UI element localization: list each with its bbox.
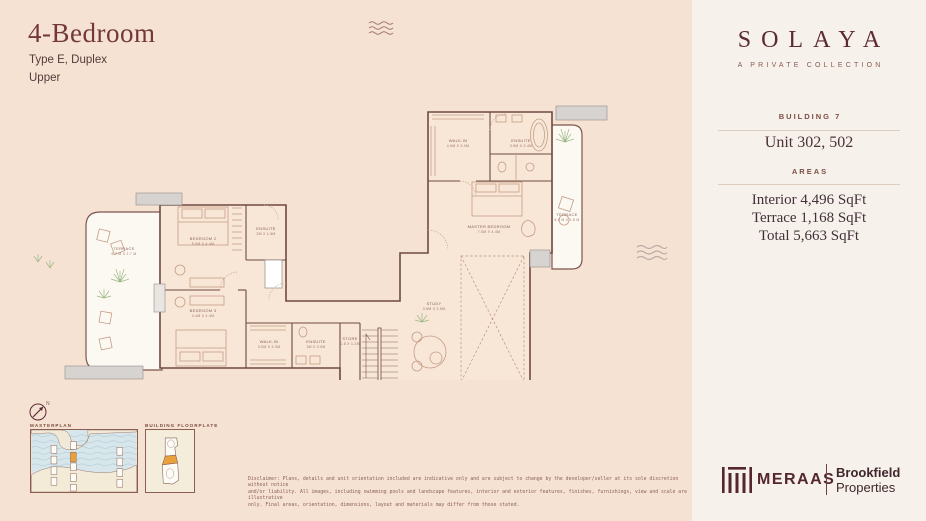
page-title: 4-Bedroom [28,18,155,49]
floorplate-label: BUILDING FLOORPLATE [145,423,218,428]
svg-text:BEDROOM 2: BEDROOM 2 [190,236,217,241]
svg-text:TERRACE: TERRACE [113,246,134,251]
svg-text:ENSUITE: ENSUITE [511,138,530,143]
disclaimer-text: Disclaimer: Plans, details and unit orie… [248,477,688,509]
svg-text:STUDY: STUDY [426,301,441,306]
svg-text:ENSUITE: ENSUITE [306,339,325,344]
svg-text:WALK-IN: WALK-IN [449,138,468,143]
svg-text:TERRACE: TERRACE [556,212,577,217]
disclaimer-line: only. Final areas, orientation, dimensio… [248,503,688,509]
masterplan-highlight [70,452,76,462]
divider [718,184,900,185]
brand-logo: SOLAYA [692,27,926,54]
disclaimer-line: and/or liability. All images, including … [248,490,688,503]
svg-text:4.0M X 3.0M: 4.0M X 3.0M [447,144,470,148]
brookfield-properties: Properties [836,480,895,495]
divider [718,130,900,131]
terrace-area: Terrace 1,168 SqFt [692,209,926,227]
svg-text:8.0 M X 1.5 M: 8.0 M X 1.5 M [554,218,579,222]
brand-tagline: A PRIVATE COLLECTION [692,62,926,69]
svg-text:2M X 1.5M: 2M X 1.5M [256,232,275,236]
info-sidebar [692,0,926,521]
svg-text:6.2 M X 2.7 M: 6.2 M X 2.7 M [111,252,136,256]
logo-divider [826,464,827,495]
svg-text:3M X 3.0M: 3M X 3.0M [306,345,325,349]
svg-text:ENSUITE: ENSUITE [256,226,275,231]
svg-text:7.5M X 4.4M: 7.5M X 4.4M [478,230,501,234]
svg-text:3.9M X 3.4M: 3.9M X 3.4M [510,144,533,148]
disclaimer-line: Disclaimer: Plans, details and unit orie… [248,477,688,490]
areas-heading: AREAS [692,167,926,176]
svg-text:3.0M X 3.0M: 3.0M X 3.0M [258,345,281,349]
waves-icon [636,243,668,262]
svg-text:1.8 X 1.2M: 1.8 X 1.2M [340,342,359,346]
waves-icon [368,20,394,37]
svg-text:MASTER BEDROOM: MASTER BEDROOM [468,224,511,229]
svg-text:WALK-IN: WALK-IN [260,339,279,344]
meraas-wordmark: MERAAS [757,471,835,489]
area-values: Interior 4,496 SqFt Terrace 1,168 SqFt T… [692,191,926,245]
svg-text:STORE: STORE [342,336,357,341]
building-label: BUILDING 7 [692,112,926,121]
interior-area: Interior 4,496 SqFt [692,191,926,209]
svg-text:BEDROOM 3: BEDROOM 3 [190,308,217,313]
floor-plan: TERRACE 6.2 M X 2.7 M BEDROOM 2 5.0M X 4… [25,90,640,380]
unit-number: Unit 302, 502 [692,134,926,152]
floor-level-label: Upper [29,72,60,84]
floorplate-thumbnail [145,429,195,493]
masterplan-thumbnail [30,429,138,493]
svg-text:N: N [46,401,50,407]
meraas-logo-icon [722,467,752,493]
terrace-right [552,125,582,269]
svg-text:3.5M X 3.5M: 3.5M X 3.5M [423,307,446,311]
masterplan-label: MASTERPLAN [30,423,72,428]
svg-text:5.0M X 4.4M: 5.0M X 4.4M [192,242,215,246]
north-compass-icon: N [27,399,53,423]
total-area: Total 5,663 SqFt [692,227,926,245]
staircase [362,328,398,380]
unit-type-subtitle: Type E, Duplex [29,54,107,66]
entry-door [265,260,282,288]
brookfield-wordmark: Brookfield [836,465,900,480]
svg-text:4.4M X 4.4M: 4.4M X 4.4M [192,314,215,318]
